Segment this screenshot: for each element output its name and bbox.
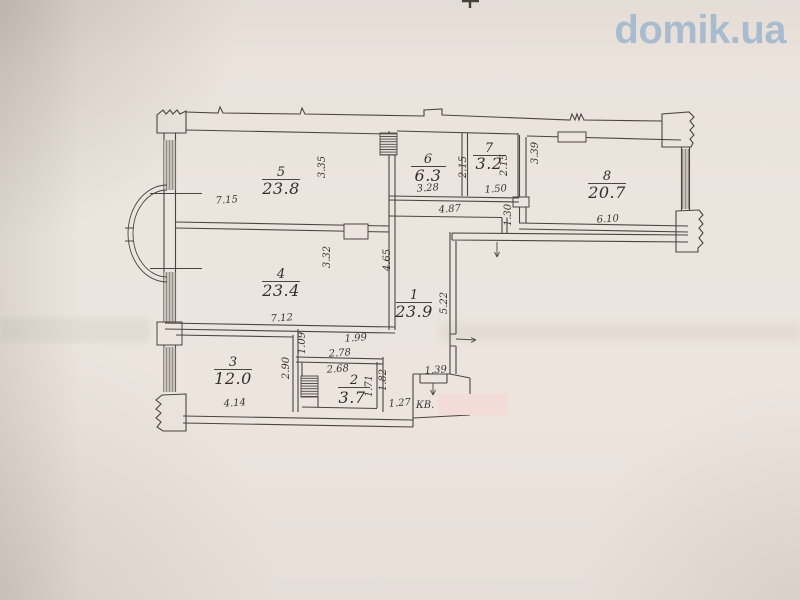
room-3-label: 3 12.0 — [214, 355, 252, 388]
top-edge-mark — [462, 0, 479, 8]
dim-room6-depth: 2.15 — [458, 156, 469, 179]
door-swing-hall-top — [495, 242, 500, 257]
windows — [157, 140, 182, 392]
dim-room6-width: 3.28 — [416, 182, 439, 195]
dim-room8-width: 6.10 — [596, 213, 620, 226]
room-4-area: 23.4 — [261, 281, 300, 300]
wall-pillar-left — [157, 322, 182, 345]
room-1-area: 23.9 — [394, 302, 433, 321]
dim-hall-side-depth: 4.65 — [382, 249, 393, 272]
room-5-area: 23.8 — [261, 179, 300, 198]
room-2-number: 2 — [349, 373, 358, 388]
door-room8 — [558, 132, 586, 142]
dim-vestibule-width: 1.39 — [424, 364, 448, 377]
dim-room7-depth: 2.15 — [499, 154, 510, 177]
dim-room8-depth: 3.39 — [530, 141, 541, 164]
dim-room2-width: 2.68 — [325, 363, 349, 376]
vent-shaft-top — [380, 133, 397, 155]
dim-room4-depth: 3.32 — [322, 246, 333, 268]
dim-hall-top-width: 4.87 — [437, 203, 462, 216]
apartment-label: КВ. — [415, 400, 434, 411]
dim-room7-width: 1.50 — [484, 183, 508, 196]
window-room3 — [164, 347, 176, 392]
floor-plan-drawing: КВ. 5 23.8 6 6.3 7 3.2 8 20.7 — [0, 0, 800, 600]
room-3-area: 12.0 — [214, 369, 252, 388]
redaction-box — [438, 394, 508, 415]
room-6-label: 6 6.3 — [411, 152, 446, 185]
dim-entry-depth: 1.82 — [378, 369, 389, 391]
door-room5-room4 — [344, 224, 368, 239]
door-swing-hall-side — [456, 338, 476, 343]
dim-room2-depth: 1.71 — [364, 375, 375, 397]
window-room8 — [682, 149, 690, 209]
room-8-area: 20.7 — [587, 183, 626, 202]
dim-entry-width: 1.27 — [388, 397, 412, 410]
room-3-number: 3 — [229, 355, 237, 370]
room-1-number: 1 — [410, 288, 418, 303]
window-room4 — [164, 272, 176, 322]
door-swing-entry — [431, 383, 436, 395]
dim-hall-top-depth: 1.30 — [503, 203, 514, 226]
dim-room5-width: 7.15 — [215, 194, 238, 207]
dim-room5-depth: 3.35 — [317, 156, 328, 178]
dim-room3-depth: 2.90 — [281, 356, 292, 380]
dim-room4-width: 7.12 — [270, 312, 293, 325]
dim-room2-top-width: 2.78 — [327, 347, 351, 360]
room-6-number: 6 — [424, 152, 432, 167]
room-4-number: 4 — [276, 267, 285, 282]
room-5-number: 5 — [277, 165, 285, 180]
room-4-label: 4 23.4 — [261, 267, 300, 300]
dim-hall-height: 5.22 — [439, 292, 450, 314]
dim-passage-depth: 1.09 — [297, 331, 308, 354]
room-8-label: 8 20.7 — [587, 169, 626, 202]
room-8-number: 8 — [603, 169, 611, 184]
room-2-area: 3.7 — [339, 388, 366, 407]
room-labels: 5 23.8 6 6.3 7 3.2 8 20.7 4 — [214, 141, 626, 407]
dim-passage-width: 1.99 — [344, 332, 368, 345]
vent-shaft-room2 — [301, 376, 318, 397]
room-1-label: 1 23.9 — [394, 288, 433, 321]
dim-room3-width: 4.14 — [222, 397, 246, 410]
room-5-label: 5 23.8 — [261, 165, 300, 198]
window-room5 — [164, 140, 176, 190]
floor-plan-photo: domik.ua — [0, 0, 800, 600]
